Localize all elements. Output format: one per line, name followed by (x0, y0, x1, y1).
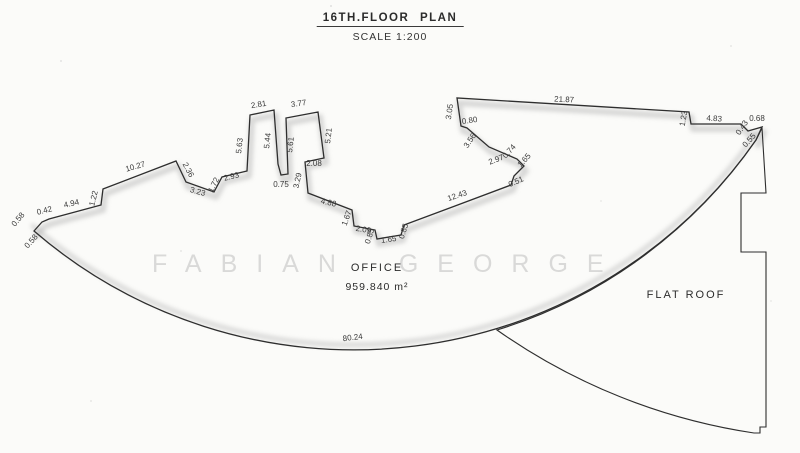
dimension-label: 2.08 (306, 159, 322, 168)
dimension-label: 0.58 (10, 210, 27, 228)
dimension-label: 3.77 (290, 98, 307, 109)
dimension-label: 5.63 (234, 137, 245, 154)
dimension-label: 1.22 (87, 189, 100, 207)
dimension-label: 3.29 (292, 171, 304, 189)
dimension-label: 4.94 (63, 197, 81, 209)
dimension-label: 3.05 (444, 103, 455, 120)
dimension-label: 5.44 (262, 132, 273, 149)
dimension-label: 4.83 (706, 113, 723, 123)
dimension-label: 21.87 (554, 94, 575, 104)
flat-roof-label: FLAT ROOF (647, 289, 726, 301)
dimension-label: 5.21 (323, 127, 334, 144)
dimension-label: 0.42 (36, 204, 54, 217)
dimension-labels: 0.580.424.941.2210.272.363.231.722.935.6… (10, 94, 766, 343)
dimension-label: 0.75 (273, 180, 289, 189)
floor-plan-drawing: OFFICE 959.840 m² FLAT ROOF 0.580.424.94… (0, 0, 800, 453)
dimension-label: 3.23 (189, 185, 207, 198)
dimension-label: 4.88 (320, 196, 338, 208)
floor-plan-sheet: 16TH.FLOOR PLAN SCALE 1:200 FABIAN GEORG… (0, 0, 800, 453)
dimension-label: 2.81 (250, 99, 267, 110)
dimension-label: 1.23 (678, 110, 690, 127)
office-outline (34, 98, 762, 350)
office-room-label: OFFICE (351, 262, 403, 274)
dimension-label: 0.68 (749, 114, 765, 123)
dimension-label: 0.80 (461, 115, 478, 126)
dimension-label: 80.24 (342, 332, 364, 343)
dimension-label: 1.65 (516, 151, 533, 169)
dimension-label: 10.27 (124, 159, 146, 173)
paper-specks (0, 0, 2, 2)
dimension-label: 5.61 (285, 136, 296, 153)
office-area-label: 959.840 m² (345, 281, 408, 293)
dimension-label: 12.43 (446, 188, 468, 203)
